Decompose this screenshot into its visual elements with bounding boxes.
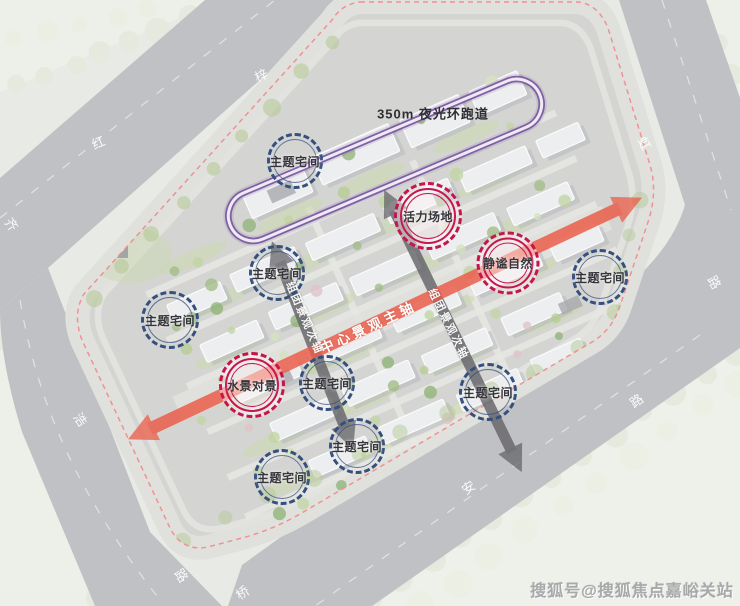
site-plan-map [0, 0, 740, 606]
site-plan-canvas: 主题宅间 主题宅间 主题宅间 主题宅间 主题宅间 主题宅间 主题宅间 主题宅间 … [0, 0, 740, 606]
